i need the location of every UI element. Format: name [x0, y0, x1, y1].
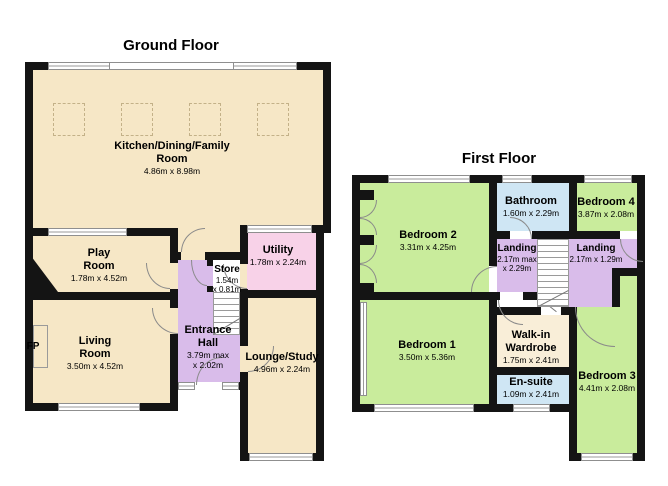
window [584, 175, 632, 183]
ground-floor-title: Ground Floor [91, 37, 251, 54]
first-floor-title: First Floor [419, 150, 579, 167]
window [58, 403, 140, 411]
wardrobe-stub [360, 283, 374, 292]
skylight [189, 103, 221, 136]
sliding-doors [110, 62, 233, 70]
window [581, 453, 633, 461]
wall [352, 292, 500, 300]
wall [643, 231, 645, 239]
floorplan-canvas: Ground Floor [0, 0, 668, 486]
window [249, 453, 313, 461]
label-living-room: Living Room 3.50m x 4.52m [45, 335, 145, 371]
room-lounge-study [240, 290, 324, 461]
wall [170, 300, 178, 308]
window [247, 225, 312, 233]
window [388, 175, 470, 183]
window [222, 382, 239, 390]
window [233, 62, 297, 70]
label-landing-right: Landing 2.17m x 1.29m [556, 243, 636, 264]
label-bedroom-3: Bedroom 3 4.41m x 2.08m [547, 370, 667, 393]
label-store: Store 1.54m x 0.81m [197, 264, 257, 295]
wall [497, 231, 510, 239]
room-bedroom-3 [620, 276, 637, 307]
wall [323, 62, 331, 233]
label-bedroom-2: Bedroom 2 3.31m x 4.25m [368, 229, 488, 252]
wall [178, 252, 181, 260]
wardrobe-stub [360, 190, 374, 200]
window [178, 382, 195, 390]
wall [612, 276, 620, 307]
label-walkin-wardrobe: Walk-in Wardrobe 1.75m x 2.41m [481, 329, 581, 365]
skylight [257, 103, 289, 136]
label-lounge-study: Lounge/Study 4.96m x 2.24m [222, 351, 342, 374]
room-landing-wrap [569, 276, 612, 307]
label-bedroom-4: Bedroom 4 3.87m x 2.08m [556, 196, 656, 219]
wall [561, 307, 569, 315]
wall [25, 62, 33, 411]
window [502, 175, 532, 183]
wall [240, 372, 248, 461]
label-landing-left: Landing 2.17m max x 2.29m [477, 243, 557, 274]
label-bedroom-1: Bedroom 1 3.50m x 5.36m [367, 339, 487, 362]
wall [523, 292, 537, 300]
window [360, 302, 367, 396]
skylight [53, 103, 85, 136]
window [48, 228, 127, 236]
window [48, 62, 110, 70]
label-kitchen: Kitchen/Dining/Family Room 4.86m x 8.98m [92, 140, 252, 176]
exterior-patch [178, 390, 240, 411]
skylight [121, 103, 153, 136]
wall [170, 228, 178, 263]
wall [612, 268, 637, 276]
wall [532, 231, 620, 239]
window [374, 404, 474, 412]
label-fireplace: FP [20, 341, 46, 353]
label-play-room: Play Room 1.78m x 4.52m [49, 247, 149, 283]
window [513, 404, 550, 412]
